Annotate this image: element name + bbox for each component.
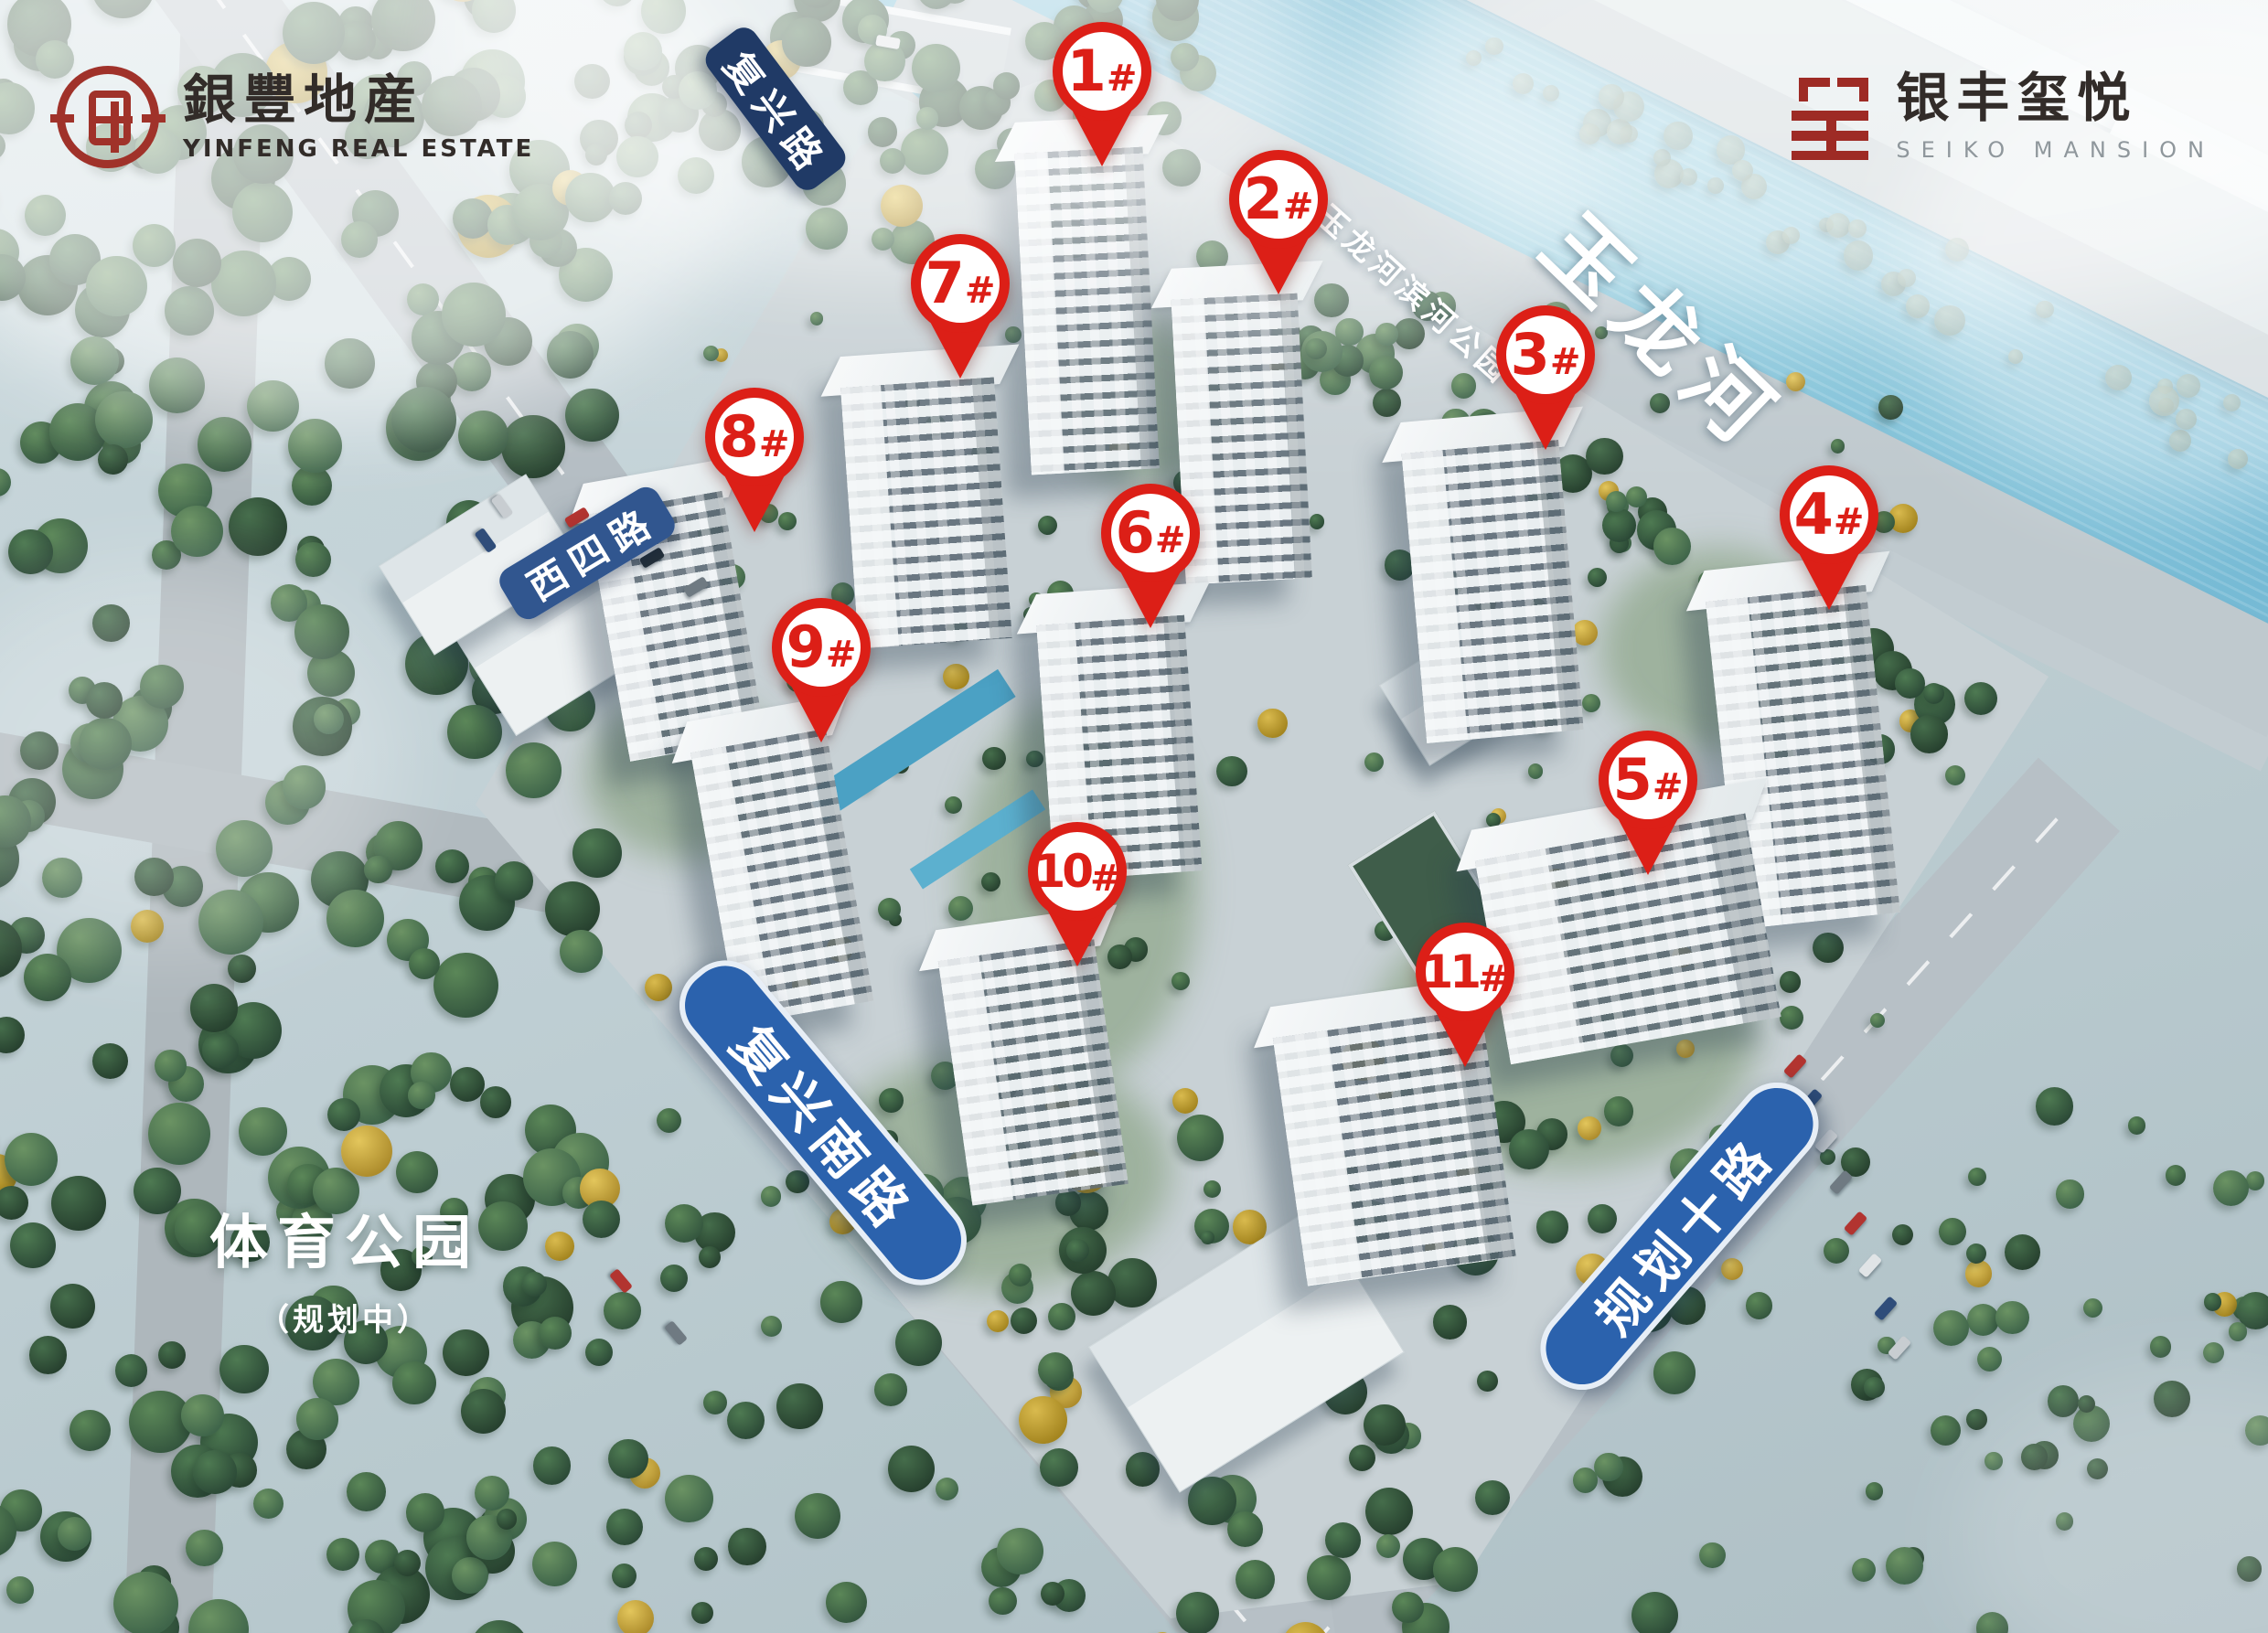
- building-pin: 4#: [1780, 465, 1878, 612]
- building-pin: 3#: [1496, 305, 1595, 452]
- pin-circle: 2#: [1229, 150, 1328, 249]
- building-pin: 6#: [1101, 484, 1200, 630]
- building-pin: 9#: [772, 598, 871, 744]
- pin-hash: #: [1107, 60, 1138, 97]
- pin-number: 7: [925, 255, 965, 312]
- pin-hash: #: [1155, 522, 1186, 559]
- building-pin: 10#: [1028, 822, 1127, 968]
- pin-number: 6: [1116, 505, 1155, 561]
- pin-hash: #: [1478, 961, 1509, 998]
- pin-hash: #: [1550, 344, 1581, 380]
- pin-hash: #: [1834, 504, 1865, 540]
- pin-circle: 9#: [772, 598, 871, 697]
- yinfeng-name-cn: 銀豐地産: [183, 71, 534, 130]
- sports-park-label: 体育公园 （规划中）: [194, 1196, 496, 1339]
- pin-hash: #: [965, 272, 996, 309]
- mansion-mark-icon: [1786, 72, 1874, 160]
- pin-number: 2: [1244, 171, 1283, 228]
- yinfeng-logo: 銀豐地産 YINFENG REAL ESTATE: [57, 66, 534, 168]
- mansion-name-en: SEIKO MANSION: [1896, 137, 2215, 163]
- pin-circle: 8#: [705, 388, 804, 486]
- pin-number: 5: [1613, 752, 1653, 808]
- pin-hash: #: [1090, 860, 1121, 897]
- sports-park-title: 体育公园: [194, 1196, 496, 1280]
- pin-hash: #: [826, 636, 857, 673]
- building-pin: 2#: [1229, 150, 1328, 296]
- pin-circle: 4#: [1780, 465, 1878, 564]
- pin-number: 3: [1511, 326, 1550, 383]
- pin-number: 11: [1421, 949, 1478, 995]
- pin-circle: 10#: [1028, 822, 1127, 921]
- pin-hash: #: [1283, 188, 1314, 225]
- pin-hash: #: [1653, 769, 1684, 806]
- building-pin: 5#: [1599, 731, 1697, 877]
- building-pin: 8#: [705, 388, 804, 534]
- building-pin: 1#: [1053, 22, 1151, 168]
- pin-number: 10: [1033, 849, 1090, 894]
- pin-circle: 11#: [1416, 923, 1514, 1021]
- mansion-name-cn: 银丰玺悦: [1896, 69, 2215, 128]
- pin-circle: 6#: [1101, 484, 1200, 582]
- yinfeng-seal-icon: [57, 66, 159, 168]
- building-pin: 7#: [911, 234, 1010, 380]
- pin-circle: 7#: [911, 234, 1010, 333]
- pin-number: 8: [720, 409, 759, 465]
- yinfeng-name-en: YINFENG REAL ESTATE: [183, 135, 534, 163]
- building-pin: 11#: [1416, 923, 1514, 1069]
- pin-number: 1: [1067, 43, 1107, 100]
- mansion-logo: 银丰玺悦 SEIKO MANSION: [1786, 69, 2215, 163]
- site-plan-rendering: 复兴路西四路复兴南路规划十路玉龙河玉龙河滨河公园 1#2#3#4#5#6#7#8…: [0, 0, 2268, 1633]
- building-pins-layer: 1#2#3#4#5#6#7#8#9#10#11#: [0, 0, 2268, 1633]
- sports-park-subtitle: （规划中）: [194, 1295, 496, 1339]
- pin-hash: #: [759, 426, 790, 463]
- pin-circle: 1#: [1053, 22, 1151, 121]
- pin-number: 9: [786, 619, 826, 676]
- pin-circle: 5#: [1599, 731, 1697, 829]
- pin-number: 4: [1794, 486, 1834, 543]
- pin-circle: 3#: [1496, 305, 1595, 404]
